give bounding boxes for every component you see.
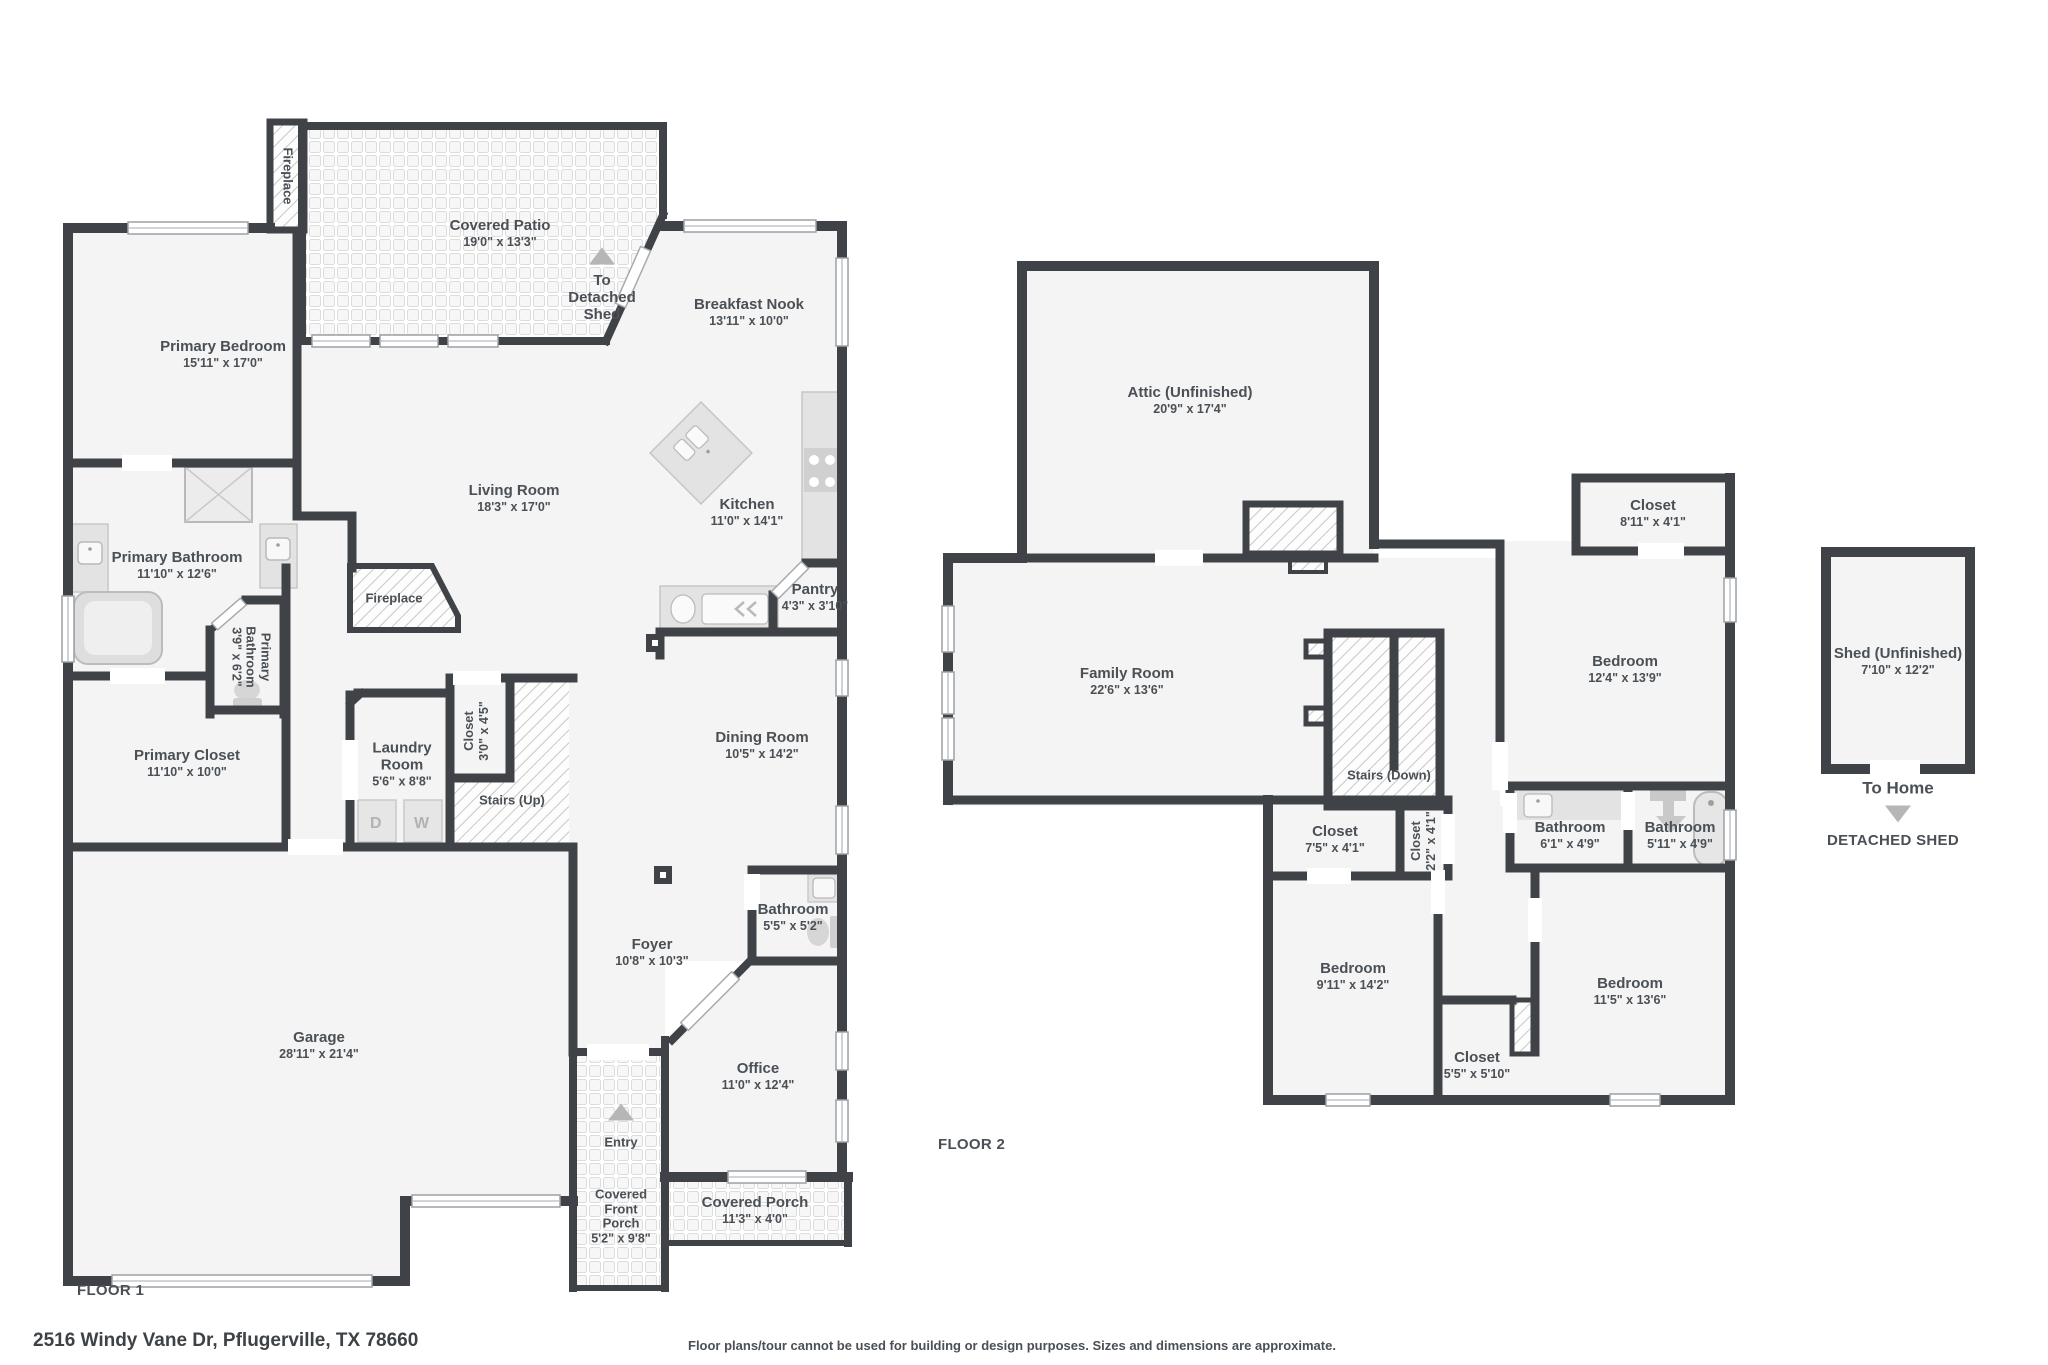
floor1-area-fills [68,122,848,1288]
shed-fill [1826,552,1970,769]
floor2-tag: FLOOR 2 [938,1136,1005,1153]
disclaimer-text: Floor plans/tour cannot be used for buil… [688,1338,1336,1353]
dryer-letter: D [370,815,382,832]
floor1-tag: FLOOR 1 [77,1282,144,1299]
to-shed-arrow-icon [589,248,615,265]
entry-arrow-icon [608,1104,634,1121]
floorplan-canvas: D W Fireplace Covered Patio 19'0" x 13'3… [0,0,2048,1365]
floorplan-drawing: D W [0,0,2048,1365]
to-home-arrow-icon [1885,806,1911,823]
washer-letter: W [414,815,430,832]
address-text: 2516 Windy Vane Dr, Pflugerville, TX 786… [33,1330,418,1352]
label-detached-shed: DETACHED SHED [1827,832,1959,849]
